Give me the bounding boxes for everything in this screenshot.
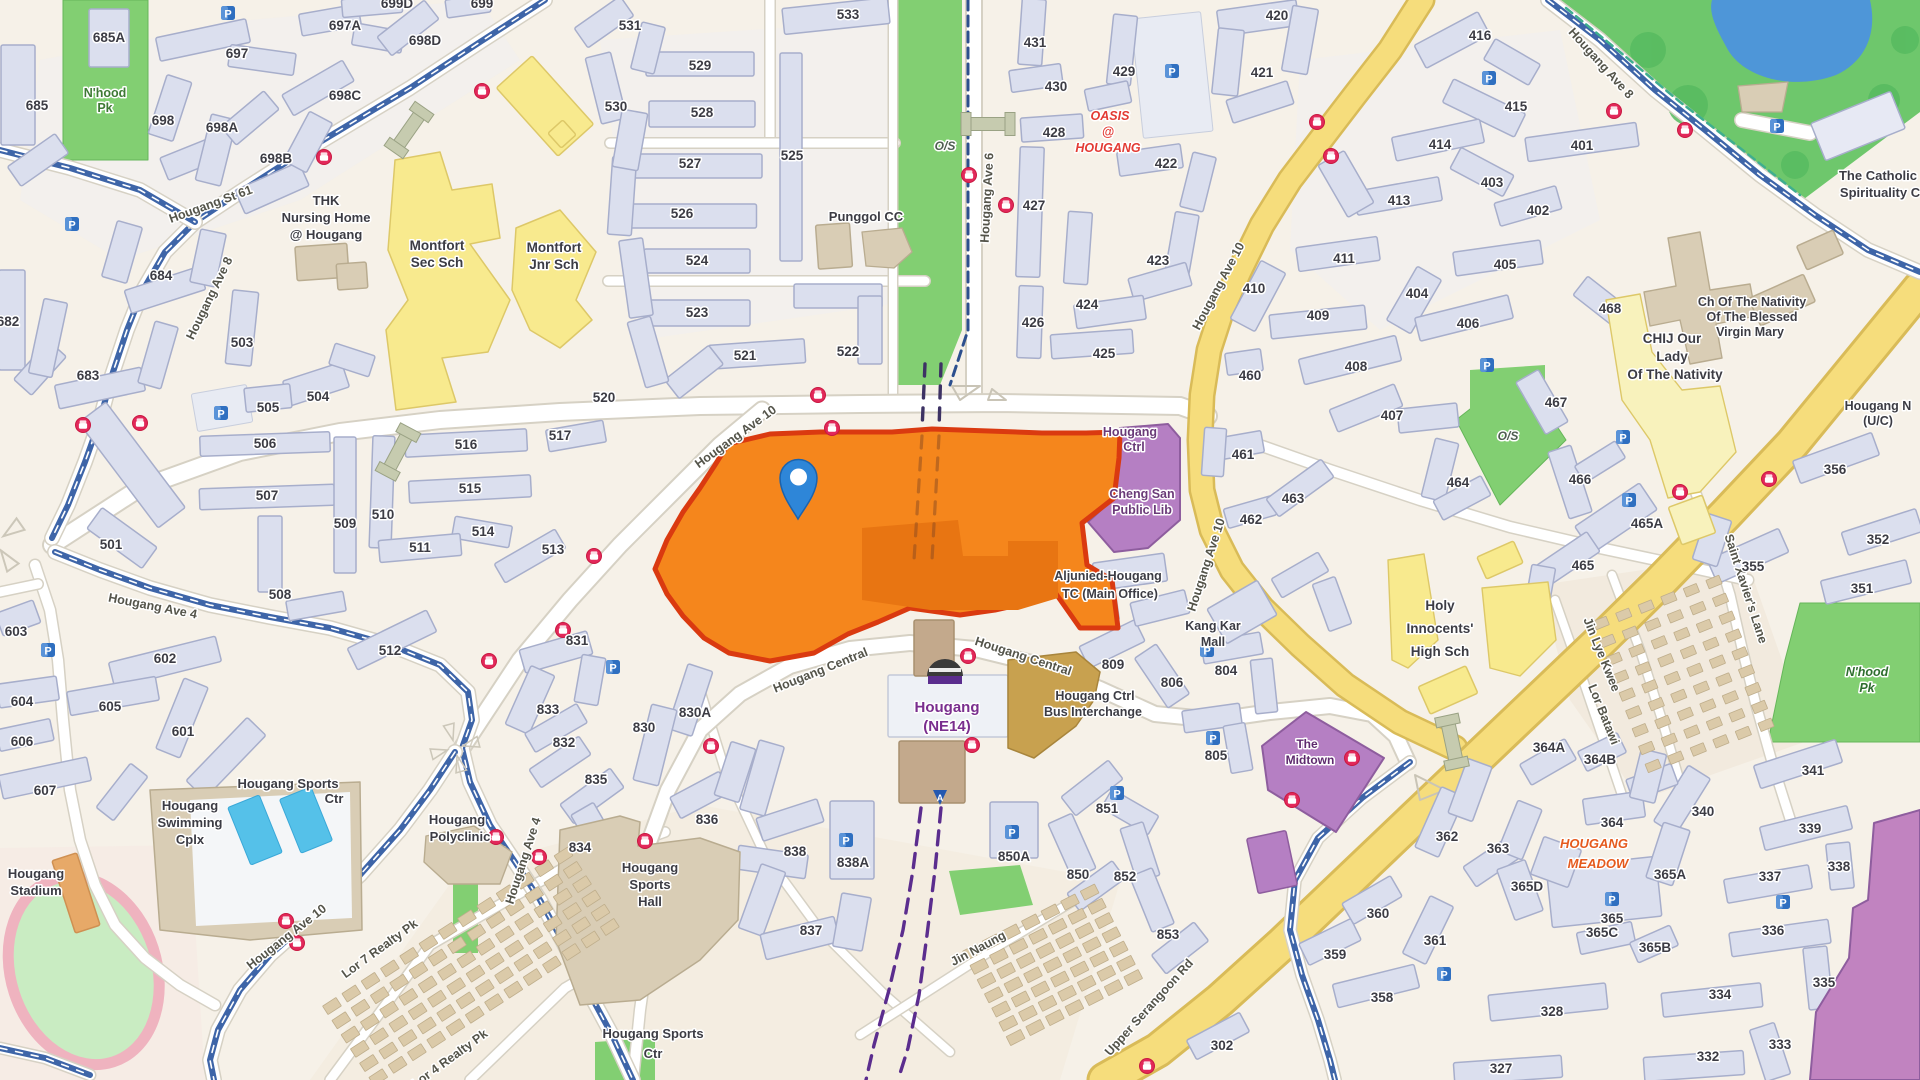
svg-text:Hall: Hall <box>638 894 662 909</box>
svg-text:423: 423 <box>1147 253 1170 268</box>
svg-text:Hougang Sports: Hougang Sports <box>237 776 338 791</box>
svg-text:697A: 697A <box>329 18 362 33</box>
svg-text:HOUGANG: HOUGANG <box>1075 141 1141 155</box>
svg-text:OASIS: OASIS <box>1091 109 1131 123</box>
svg-text:Hougang: Hougang <box>1103 425 1157 439</box>
svg-text:837: 837 <box>800 923 823 938</box>
svg-text:529: 529 <box>689 58 712 73</box>
svg-text:465A: 465A <box>1631 516 1664 531</box>
svg-text:521: 521 <box>734 348 757 363</box>
svg-text:356: 356 <box>1824 462 1847 477</box>
svg-text:(NE14): (NE14) <box>923 718 971 735</box>
svg-text:406: 406 <box>1457 316 1480 331</box>
svg-text:A: A <box>937 793 944 803</box>
svg-text:604: 604 <box>11 694 34 709</box>
svg-text:339: 339 <box>1799 821 1822 836</box>
svg-text:403: 403 <box>1481 175 1504 190</box>
svg-text:P: P <box>1113 789 1120 801</box>
svg-text:506: 506 <box>254 436 277 451</box>
svg-text:N'hood: N'hood <box>84 86 127 100</box>
svg-text:462: 462 <box>1240 512 1263 527</box>
svg-text:601: 601 <box>172 724 195 739</box>
svg-text:Lady: Lady <box>1656 349 1688 364</box>
svg-text:416: 416 <box>1469 28 1492 43</box>
svg-text:Sec Sch: Sec Sch <box>411 255 464 270</box>
svg-text:Montfort: Montfort <box>410 238 465 253</box>
svg-text:401: 401 <box>1571 138 1594 153</box>
svg-text:527: 527 <box>679 156 702 171</box>
svg-text:505: 505 <box>257 400 280 415</box>
svg-text:526: 526 <box>671 206 694 221</box>
svg-text:Sports: Sports <box>629 877 670 892</box>
svg-text:602: 602 <box>154 651 177 666</box>
svg-text:503: 503 <box>231 335 254 350</box>
svg-text:TC (Main Office): TC (Main Office) <box>1062 587 1158 601</box>
svg-text:Jnr Sch: Jnr Sch <box>529 257 579 272</box>
svg-text:525: 525 <box>781 148 804 163</box>
svg-text:365C: 365C <box>1586 925 1619 940</box>
svg-text:Ch Of The Nativity: Ch Of The Nativity <box>1698 295 1806 309</box>
svg-text:606: 606 <box>11 734 34 749</box>
svg-text:520: 520 <box>593 390 616 405</box>
svg-text:851: 851 <box>1096 801 1119 816</box>
svg-text:467: 467 <box>1545 395 1568 410</box>
svg-text:833: 833 <box>537 702 560 717</box>
svg-text:P: P <box>1625 496 1632 508</box>
svg-text:Innocents': Innocents' <box>1407 621 1474 636</box>
svg-text:809: 809 <box>1102 657 1125 672</box>
svg-text:697: 697 <box>226 46 249 61</box>
svg-text:853: 853 <box>1157 927 1180 942</box>
svg-text:Midtown: Midtown <box>1286 753 1335 767</box>
svg-text:Punggol CC: Punggol CC <box>829 209 904 224</box>
svg-text:533: 533 <box>837 7 860 22</box>
svg-text:805: 805 <box>1205 748 1228 763</box>
svg-text:P: P <box>1483 361 1490 373</box>
svg-text:P: P <box>217 409 224 421</box>
svg-text:850: 850 <box>1067 867 1090 882</box>
svg-text:515: 515 <box>459 481 482 496</box>
svg-text:514: 514 <box>472 524 495 539</box>
svg-text:510: 510 <box>372 507 395 522</box>
svg-text:804: 804 <box>1215 663 1238 678</box>
svg-text:830A: 830A <box>679 705 712 720</box>
svg-text:414: 414 <box>1429 137 1452 152</box>
svg-text:Hougang: Hougang <box>622 860 678 875</box>
svg-text:528: 528 <box>691 105 714 120</box>
svg-text:Public Lib: Public Lib <box>1112 503 1172 517</box>
svg-text:838: 838 <box>784 844 807 859</box>
svg-text:P: P <box>1779 898 1786 910</box>
svg-text:Hougang N: Hougang N <box>1845 399 1912 413</box>
svg-text:Of The Nativity: Of The Nativity <box>1627 367 1723 382</box>
svg-text:365A: 365A <box>1654 867 1687 882</box>
svg-text:335: 335 <box>1813 975 1836 990</box>
svg-text:413: 413 <box>1388 193 1411 208</box>
svg-text:Holy: Holy <box>1425 598 1455 613</box>
svg-text:508: 508 <box>269 587 292 602</box>
svg-text:327: 327 <box>1490 1061 1513 1076</box>
svg-text:Polyclinic: Polyclinic <box>430 829 491 844</box>
svg-text:P: P <box>1619 433 1626 445</box>
svg-text:Of The Blessed: Of The Blessed <box>1707 310 1798 324</box>
svg-text:523: 523 <box>686 305 709 320</box>
svg-text:517: 517 <box>549 428 572 443</box>
svg-text:429: 429 <box>1113 64 1136 79</box>
svg-text:333: 333 <box>1769 1037 1792 1052</box>
svg-text:Virgin Mary: Virgin Mary <box>1716 325 1784 339</box>
svg-text:@: @ <box>1102 125 1114 139</box>
svg-text:337: 337 <box>1759 869 1782 884</box>
svg-text:Cheng San: Cheng San <box>1109 487 1174 501</box>
svg-text:504: 504 <box>307 389 330 404</box>
svg-text:834: 834 <box>569 840 592 855</box>
svg-text:N'hood: N'hood <box>1846 665 1889 679</box>
svg-text:408: 408 <box>1345 359 1368 374</box>
svg-text:Kang Kar: Kang Kar <box>1185 619 1241 633</box>
svg-text:682: 682 <box>0 314 19 329</box>
svg-text:THK: THK <box>313 193 340 208</box>
svg-text:832: 832 <box>553 735 576 750</box>
svg-text:@ Hougang: @ Hougang <box>290 227 363 242</box>
svg-text:HOUGANG: HOUGANG <box>1560 836 1628 851</box>
svg-text:852: 852 <box>1114 869 1137 884</box>
svg-text:Mall: Mall <box>1201 635 1225 649</box>
svg-text:Cplx: Cplx <box>176 832 205 847</box>
svg-text:698B: 698B <box>260 151 293 166</box>
svg-text:(U/C): (U/C) <box>1863 414 1893 428</box>
svg-text:531: 531 <box>619 18 642 33</box>
svg-text:466: 466 <box>1569 472 1592 487</box>
svg-text:420: 420 <box>1266 8 1289 23</box>
svg-text:334: 334 <box>1709 987 1732 1002</box>
svg-text:P: P <box>1485 74 1492 86</box>
svg-text:415: 415 <box>1505 99 1528 114</box>
svg-text:522: 522 <box>837 344 860 359</box>
svg-text:Ctr: Ctr <box>644 1046 663 1061</box>
svg-text:402: 402 <box>1527 203 1550 218</box>
svg-text:358: 358 <box>1371 990 1394 1005</box>
svg-text:336: 336 <box>1762 923 1785 938</box>
svg-text:411: 411 <box>1333 251 1355 266</box>
svg-text:The Catholic: The Catholic <box>1839 168 1917 183</box>
svg-text:P: P <box>1209 734 1216 746</box>
svg-text:501: 501 <box>100 537 123 552</box>
svg-text:685A: 685A <box>93 30 126 45</box>
svg-text:High Sch: High Sch <box>1411 644 1470 659</box>
svg-text:465: 465 <box>1572 558 1595 573</box>
svg-text:362: 362 <box>1436 829 1459 844</box>
svg-text:P: P <box>1440 970 1447 982</box>
svg-text:835: 835 <box>585 772 608 787</box>
svg-text:431: 431 <box>1024 35 1047 50</box>
svg-text:516: 516 <box>455 437 478 452</box>
svg-text:430: 430 <box>1045 79 1068 94</box>
svg-text:404: 404 <box>1406 286 1429 301</box>
svg-text:806: 806 <box>1161 675 1184 690</box>
svg-text:Hougang: Hougang <box>915 699 980 716</box>
svg-text:Hougang Ctrl: Hougang Ctrl <box>1055 689 1134 703</box>
svg-text:P: P <box>1168 67 1175 79</box>
svg-text:428: 428 <box>1043 125 1066 140</box>
svg-text:Hougang Sports: Hougang Sports <box>602 1026 703 1041</box>
svg-text:409: 409 <box>1307 308 1330 323</box>
svg-text:CHIJ Our: CHIJ Our <box>1643 331 1702 346</box>
svg-text:364B: 364B <box>1584 752 1617 767</box>
svg-text:Stadium: Stadium <box>10 883 61 898</box>
svg-text:P: P <box>609 663 616 675</box>
svg-text:P: P <box>842 836 849 848</box>
svg-text:463: 463 <box>1282 491 1305 506</box>
svg-text:509: 509 <box>334 516 357 531</box>
svg-text:698: 698 <box>152 113 175 128</box>
svg-text:Hougang: Hougang <box>162 798 218 813</box>
svg-text:683: 683 <box>77 368 100 383</box>
svg-text:684: 684 <box>150 268 173 283</box>
svg-text:507: 507 <box>256 488 279 503</box>
svg-text:831: 831 <box>566 633 589 648</box>
svg-text:364A: 364A <box>1533 740 1566 755</box>
svg-text:698A: 698A <box>206 120 239 135</box>
svg-text:Swimming: Swimming <box>157 815 222 830</box>
svg-text:524: 524 <box>686 253 709 268</box>
svg-text:MEADOW: MEADOW <box>1568 856 1630 871</box>
svg-text:Nursing Home: Nursing Home <box>282 210 371 225</box>
svg-text:699: 699 <box>471 0 494 11</box>
svg-text:352: 352 <box>1867 532 1890 547</box>
svg-text:P: P <box>1773 122 1780 134</box>
svg-text:341: 341 <box>1802 763 1825 778</box>
svg-text:511: 511 <box>409 540 431 555</box>
svg-text:Ctrl: Ctrl <box>1123 440 1145 454</box>
svg-text:685: 685 <box>26 98 49 113</box>
svg-text:P: P <box>44 646 51 658</box>
svg-text:363: 363 <box>1487 841 1510 856</box>
svg-text:P: P <box>224 9 231 21</box>
svg-text:P: P <box>1008 828 1015 840</box>
svg-text:Bus Interchange: Bus Interchange <box>1044 705 1142 719</box>
svg-text:Ctr: Ctr <box>325 791 344 806</box>
svg-text:426: 426 <box>1022 315 1045 330</box>
svg-text:424: 424 <box>1076 297 1099 312</box>
svg-text:340: 340 <box>1692 804 1715 819</box>
svg-text:365: 365 <box>1601 911 1624 926</box>
svg-text:364: 364 <box>1601 815 1624 830</box>
svg-text:850A: 850A <box>998 849 1031 864</box>
svg-text:O/S: O/S <box>935 139 956 153</box>
svg-text:Hougang: Hougang <box>429 812 485 827</box>
svg-text:360: 360 <box>1367 906 1390 921</box>
svg-text:Hougang: Hougang <box>8 866 64 881</box>
svg-text:830: 830 <box>633 720 656 735</box>
svg-text:603: 603 <box>5 624 28 639</box>
svg-text:410: 410 <box>1243 281 1266 296</box>
svg-text:P: P <box>68 220 75 232</box>
svg-text:Aljunied-Hougang: Aljunied-Hougang <box>1054 569 1162 583</box>
svg-text:607: 607 <box>34 783 57 798</box>
svg-text:421: 421 <box>1251 65 1274 80</box>
svg-text:460: 460 <box>1239 368 1262 383</box>
svg-text:425: 425 <box>1093 346 1116 361</box>
svg-text:365B: 365B <box>1639 940 1672 955</box>
svg-text:O/S: O/S <box>1498 429 1519 443</box>
svg-text:338: 338 <box>1828 859 1851 874</box>
svg-text:Pk: Pk <box>97 101 112 115</box>
svg-text:513: 513 <box>542 542 565 557</box>
svg-text:699D: 699D <box>381 0 414 11</box>
svg-text:332: 332 <box>1697 1049 1720 1064</box>
svg-text:427: 427 <box>1023 198 1046 213</box>
svg-text:359: 359 <box>1324 947 1347 962</box>
svg-text:512: 512 <box>379 643 402 658</box>
svg-text:836: 836 <box>696 812 719 827</box>
svg-text:698C: 698C <box>329 88 362 103</box>
svg-text:838A: 838A <box>837 855 870 870</box>
svg-text:422: 422 <box>1155 156 1178 171</box>
svg-text:355: 355 <box>1742 559 1765 574</box>
svg-text:698D: 698D <box>409 33 442 48</box>
svg-text:302: 302 <box>1211 1038 1234 1053</box>
svg-text:The: The <box>1296 737 1318 751</box>
svg-text:468: 468 <box>1599 301 1622 316</box>
svg-text:464: 464 <box>1447 475 1470 490</box>
svg-text:365D: 365D <box>1511 879 1544 894</box>
svg-text:Spirituality C: Spirituality C <box>1840 185 1920 200</box>
svg-text:351: 351 <box>1851 581 1874 596</box>
svg-text:405: 405 <box>1494 257 1517 272</box>
svg-text:461: 461 <box>1232 447 1255 462</box>
svg-text:P: P <box>1608 895 1615 907</box>
svg-text:605: 605 <box>99 699 122 714</box>
svg-text:Pk: Pk <box>1859 681 1875 695</box>
svg-text:407: 407 <box>1381 408 1404 423</box>
svg-text:Montfort: Montfort <box>527 240 582 255</box>
svg-text:328: 328 <box>1541 1004 1564 1019</box>
svg-text:530: 530 <box>605 99 628 114</box>
svg-text:361: 361 <box>1424 933 1447 948</box>
